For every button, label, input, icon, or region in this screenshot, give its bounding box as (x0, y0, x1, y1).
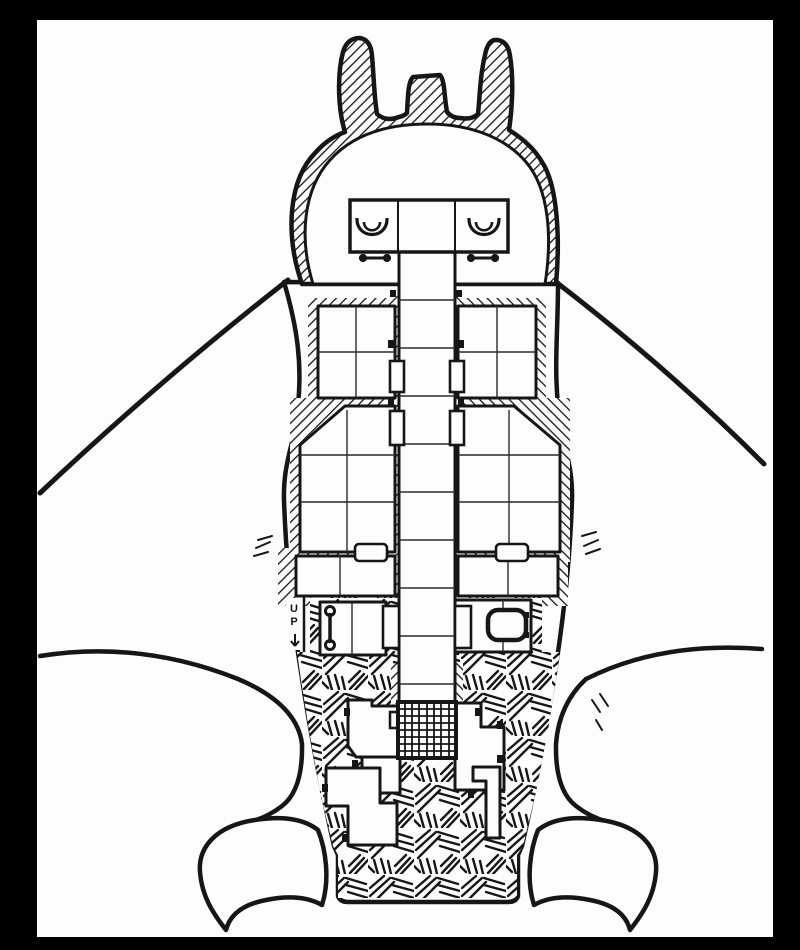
head-chamber (350, 200, 508, 261)
door (383, 606, 399, 648)
central-corridor (399, 248, 455, 704)
door (355, 544, 387, 561)
door (455, 606, 471, 648)
dragon-dungeon-map (0, 0, 800, 950)
door (450, 361, 464, 392)
door (450, 411, 464, 445)
portcullis-grate (390, 702, 456, 758)
up-label: UP (288, 603, 299, 629)
dragon-dungeon-map-page: UP (0, 0, 800, 950)
door (390, 411, 404, 445)
door (390, 361, 404, 392)
basin-icon (488, 610, 529, 640)
door (496, 544, 528, 561)
